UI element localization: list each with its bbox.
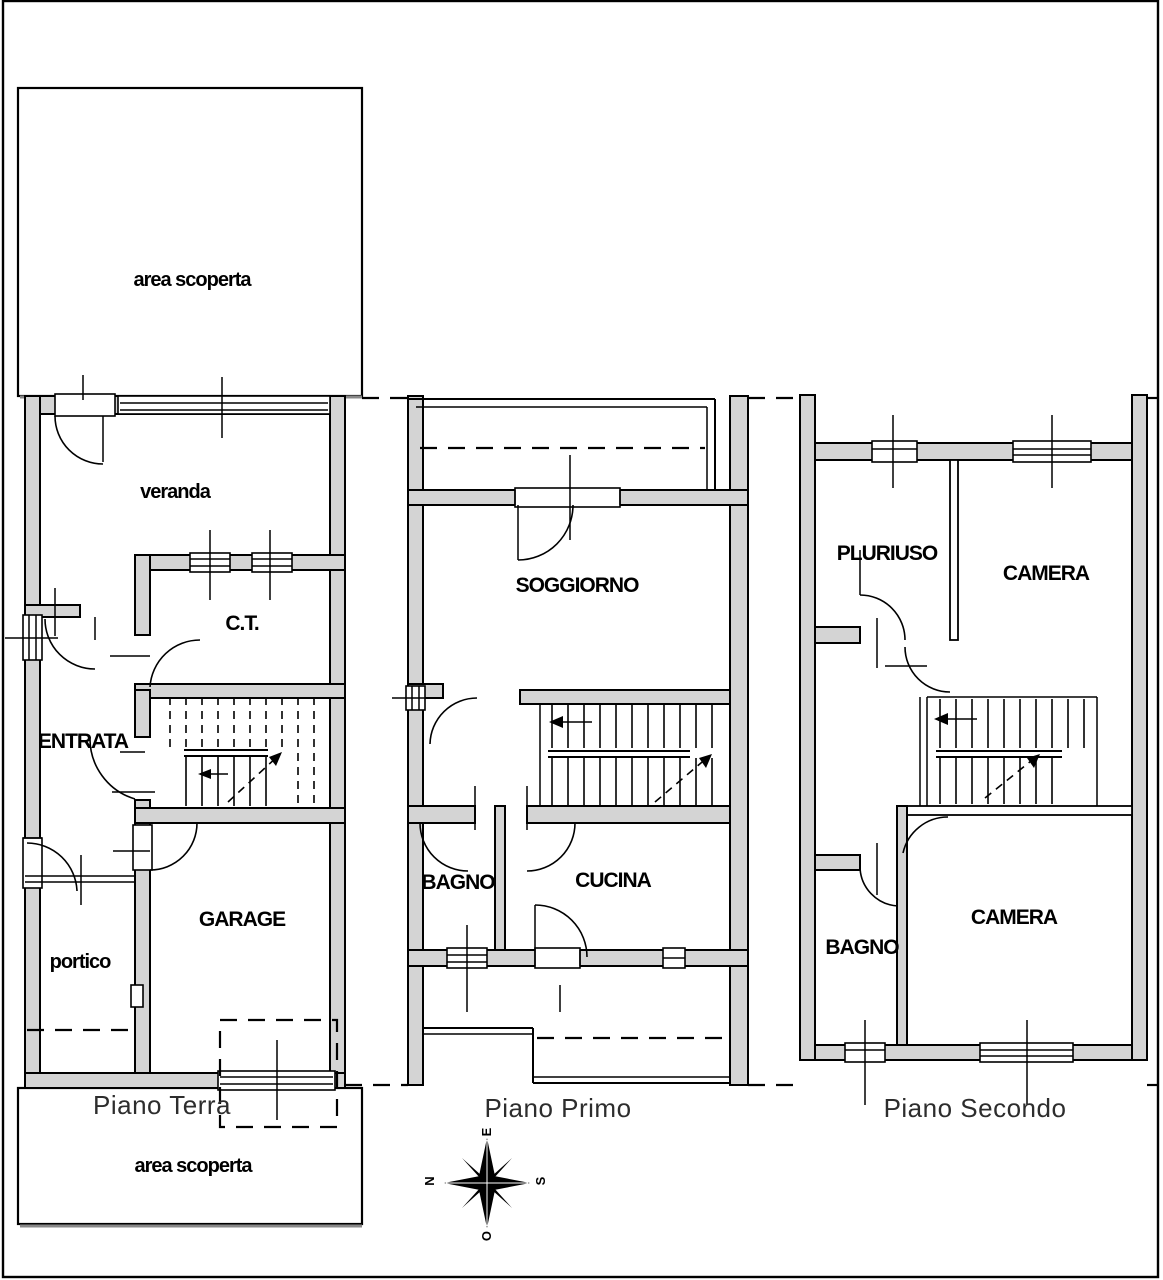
bagno-door bbox=[420, 786, 475, 871]
compass-south-label: S bbox=[533, 1176, 548, 1185]
ct-window-2 bbox=[252, 530, 292, 600]
room-label-garage: GARAGE bbox=[199, 908, 286, 931]
floor-label-piano-primo: Piano Primo bbox=[484, 1093, 631, 1123]
entrata-side-window bbox=[5, 615, 58, 660]
room-label-veranda: veranda bbox=[140, 481, 212, 503]
floor-plan-drawing: area scoperta area scoperta bbox=[0, 0, 1163, 1280]
terra-stairs bbox=[170, 697, 330, 806]
floor-label-piano-terra: Piano Terra bbox=[93, 1090, 231, 1120]
primo-hall-door-arc bbox=[430, 698, 477, 744]
floor-plan-piano-secondo: PLURIUSO CAMERA BAGNO CAMERA Piano Secon… bbox=[800, 395, 1147, 1123]
room-label-ct: C.T. bbox=[225, 612, 259, 635]
floor-plan-sheet: area scoperta area scoperta bbox=[0, 0, 1163, 1280]
corridor-door bbox=[885, 647, 950, 692]
camera-door-arc bbox=[903, 817, 948, 853]
ct-window-1 bbox=[190, 530, 230, 600]
floor-plan-piano-terra: area scoperta area scoperta bbox=[5, 88, 362, 1226]
soggiorno-balcony-door bbox=[515, 455, 620, 560]
room-label-entrata: ENTRATA bbox=[38, 730, 129, 753]
room-label-cucina: CUCINA bbox=[575, 869, 651, 892]
room-label-area-scoperta-top: area scoperta bbox=[133, 269, 252, 291]
garage-door-inner bbox=[113, 823, 197, 870]
secondo-bagno-door bbox=[860, 843, 898, 906]
secondo-stairs bbox=[920, 697, 1097, 806]
veranda-entrata-door bbox=[45, 588, 95, 669]
pluriuso-door bbox=[860, 550, 905, 668]
camera-top-window bbox=[1013, 415, 1091, 488]
compass-rose: E N S O bbox=[422, 1127, 548, 1241]
cucina-window bbox=[663, 948, 685, 968]
portico-door bbox=[23, 838, 77, 891]
secondo-walls bbox=[800, 395, 1147, 1060]
room-label-camera-bottom: CAMERA bbox=[971, 906, 1058, 929]
floor-label-piano-secondo: Piano Secondo bbox=[884, 1093, 1067, 1123]
room-label-soggiorno: SOGGIORNO bbox=[516, 574, 640, 597]
room-label-bagno-secondo: BAGNO bbox=[825, 936, 899, 959]
room-label-bagno-primo: BAGNO bbox=[421, 871, 495, 894]
primo-balcony-bottom bbox=[423, 1028, 730, 1083]
secondo-bagno-window bbox=[845, 1020, 885, 1105]
room-label-area-scoperta-bottom: area scoperta bbox=[134, 1155, 253, 1177]
primo-stairs bbox=[540, 704, 712, 806]
room-label-pluriuso: PLURIUSO bbox=[837, 542, 938, 565]
portico-wall bbox=[25, 855, 135, 1030]
yard-top bbox=[18, 88, 362, 396]
ct-door bbox=[110, 640, 200, 687]
pluriuso-window bbox=[872, 415, 917, 488]
compass-west-label: O bbox=[479, 1231, 494, 1241]
floor-plan-piano-primo: SOGGIORNO BAGNO CUCINA Piano Primo bbox=[392, 396, 748, 1123]
wall-niche bbox=[131, 985, 143, 1007]
room-label-portico: portico bbox=[50, 951, 112, 973]
primo-balcony-top bbox=[408, 399, 715, 490]
bagno-window bbox=[447, 925, 487, 1012]
compass-east-label: E bbox=[479, 1127, 494, 1136]
cucina-balcony-door bbox=[535, 905, 587, 1012]
room-label-camera-top: CAMERA bbox=[1003, 562, 1090, 585]
compass-north-label: N bbox=[422, 1176, 437, 1185]
